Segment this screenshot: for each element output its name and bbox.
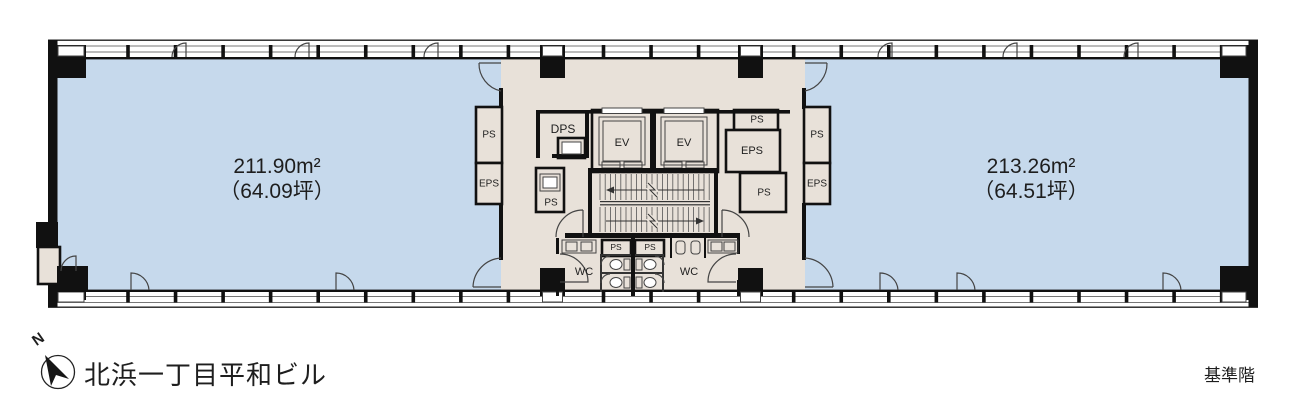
top-window-band [48,40,1258,60]
ps-left-lower-label: PS [544,198,557,209]
bottom-window-band [48,290,1258,308]
floor-note: 基準階 [1160,361,1255,386]
wc-left-label: WC [575,266,593,278]
left-area-tsubo: （64.09坪） [219,179,335,204]
ps-left-strip-label: PS [482,130,495,141]
ps-right-top-label: PS [750,115,763,126]
building-name: 北浜一丁目平和ビル [84,355,327,392]
dps-label: DPS [551,122,576,136]
left-area-sqm: 211.90m² [219,154,335,179]
ev1-label: EV [615,137,630,149]
ps-right-lower-label: PS [757,188,770,199]
ev2-label: EV [677,137,692,149]
right-area-sqm: 213.26m² [973,154,1089,179]
ps-right-strip-label: PS [810,130,823,141]
left-area-label: 211.90m² （64.09坪） [219,154,335,204]
eps-right-strip-label: EPS [807,179,827,190]
ps-box2-label: PS [644,242,655,252]
right-area-tsubo: （64.51坪） [973,179,1089,204]
floorplan-drawing [0,0,1305,409]
right-area-label: 213.26m² （64.51坪） [973,154,1089,204]
compass [42,355,75,389]
wc-right-label: WC [680,266,698,278]
floorplan-page: 211.90m² （64.09坪） 213.26m² （64.51坪） DPS … [0,0,1305,409]
eps-right-label: EPS [741,145,763,157]
ps-box1-label: PS [610,242,621,252]
eps-left-strip-label: EPS [479,179,499,190]
